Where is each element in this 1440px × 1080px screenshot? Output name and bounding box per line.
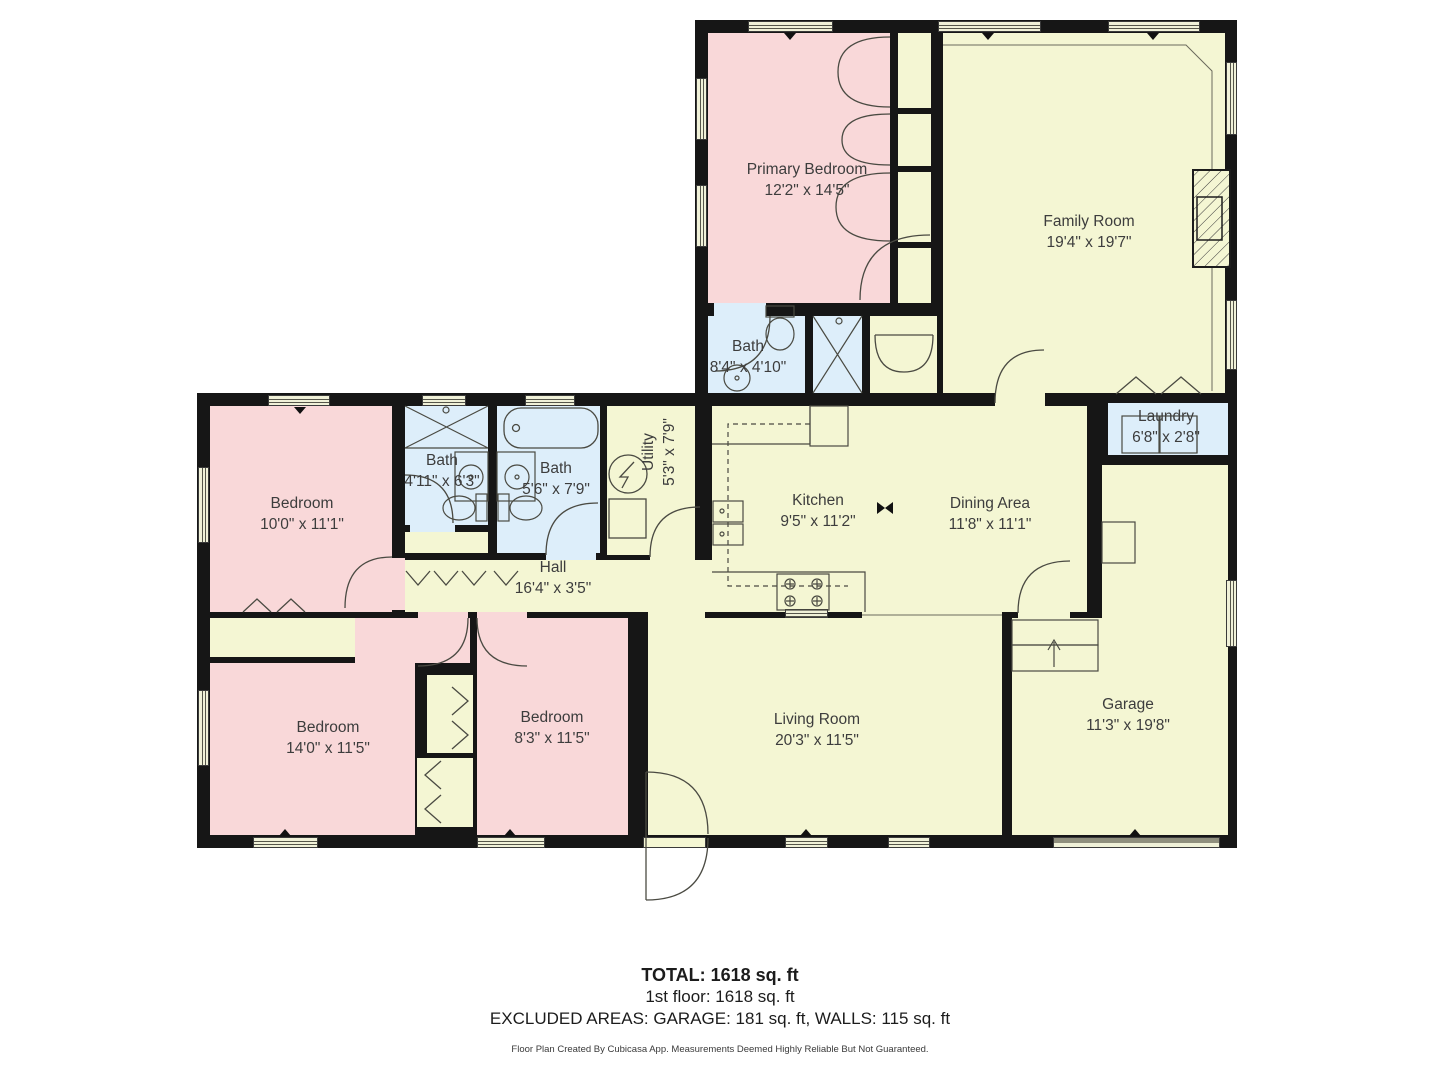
room-name: Garage bbox=[1086, 694, 1170, 715]
window bbox=[422, 395, 466, 406]
window bbox=[748, 21, 833, 32]
room-dims: 10'0" x 11'1" bbox=[260, 514, 344, 535]
doorway bbox=[410, 525, 455, 532]
bedroom-sw-entry bbox=[355, 618, 470, 663]
room-name: Hall bbox=[515, 557, 591, 578]
label-living-room: Living Room 20'3" x 11'5" bbox=[774, 709, 860, 751]
floor-plan-canvas: Primary Bedroom 12'2" x 14'5" Family Roo… bbox=[0, 0, 1440, 1080]
floor-plan: Primary Bedroom 12'2" x 14'5" Family Roo… bbox=[0, 0, 1440, 1080]
doorway bbox=[714, 303, 766, 316]
window bbox=[1108, 21, 1200, 32]
room-dims: 20'3" x 11'5" bbox=[774, 730, 860, 751]
garage-door bbox=[1053, 837, 1220, 848]
label-bedroom-nw: Bedroom 10'0" x 11'1" bbox=[260, 493, 344, 535]
window bbox=[253, 837, 318, 848]
doorway bbox=[392, 558, 405, 610]
room-name: Bath bbox=[522, 458, 590, 479]
window bbox=[525, 395, 575, 406]
open-boundary bbox=[862, 612, 1002, 618]
window bbox=[198, 690, 209, 766]
column-closet-top bbox=[427, 675, 473, 753]
room-name: Bedroom bbox=[514, 707, 589, 728]
closet-divider bbox=[898, 242, 931, 248]
suite-vestibule bbox=[870, 316, 937, 393]
room-dims: 19'4" x 19'7" bbox=[1043, 232, 1134, 253]
closet-divider bbox=[898, 166, 931, 172]
room-name: Bath bbox=[710, 336, 786, 357]
column-closet-bottom bbox=[417, 758, 473, 827]
room-dims: 5'3" x 7'9" bbox=[659, 418, 680, 486]
room-name: Dining Area bbox=[949, 493, 1032, 514]
room-dims: 9'5" x 11'2" bbox=[780, 511, 855, 532]
window bbox=[1226, 580, 1237, 647]
doorway bbox=[1018, 612, 1070, 618]
doorway bbox=[477, 612, 527, 618]
plan-summary: TOTAL: 1618 sq. ft 1st floor: 1618 sq. f… bbox=[0, 964, 1440, 1055]
label-bedroom-s: Bedroom 8'3" x 11'5" bbox=[514, 707, 589, 749]
total-area-text: TOTAL: 1618 sq. ft bbox=[0, 964, 1440, 986]
label-bath-hall: Bath 4'11" x 6'3" bbox=[404, 450, 479, 492]
room-dims: 12'2" x 14'5" bbox=[747, 180, 868, 201]
room-dims: 16'4" x 3'5" bbox=[515, 578, 591, 599]
window bbox=[198, 467, 209, 543]
label-bath-primary: Bath 8'4" x 4'10" bbox=[710, 336, 786, 378]
first-floor-area-text: 1st floor: 1618 sq. ft bbox=[0, 986, 1440, 1008]
room-dims: 11'8" x 11'1" bbox=[949, 514, 1032, 535]
label-dining-area: Dining Area 11'8" x 11'1" bbox=[949, 493, 1032, 535]
label-utility: Utility 5'3" x 7'9" bbox=[638, 418, 680, 486]
label-family-room: Family Room 19'4" x 19'7" bbox=[1043, 211, 1134, 253]
bedroom-sw-closet bbox=[210, 618, 355, 657]
room-name: Primary Bedroom bbox=[747, 159, 868, 180]
doorway bbox=[648, 612, 705, 618]
window bbox=[888, 837, 930, 848]
room-name: Bedroom bbox=[260, 493, 344, 514]
window bbox=[696, 185, 707, 247]
room-dims: 8'4" x 4'10" bbox=[710, 357, 786, 378]
room-dims: 4'11" x 6'3" bbox=[404, 471, 479, 492]
window bbox=[938, 21, 1041, 32]
label-laundry: Laundry 6'8" x 2'8" bbox=[1132, 406, 1200, 448]
room-name: Kitchen bbox=[780, 490, 855, 511]
closet-divider bbox=[898, 108, 931, 114]
window bbox=[477, 837, 545, 848]
room-dims: 5'6" x 7'9" bbox=[522, 479, 590, 500]
window bbox=[785, 837, 828, 848]
room-name: Utility bbox=[638, 418, 659, 486]
room-name: Laundry bbox=[1132, 406, 1200, 427]
room-dims: 11'3" x 19'8" bbox=[1086, 715, 1170, 736]
room-name: Living Room bbox=[774, 709, 860, 730]
excluded-areas-text: EXCLUDED AREAS: GARAGE: 181 sq. ft, WALL… bbox=[0, 1008, 1440, 1030]
label-hall: Hall 16'4" x 3'5" bbox=[515, 557, 591, 599]
window bbox=[268, 395, 330, 406]
room-name: Bedroom bbox=[286, 717, 370, 738]
room-dims: 8'3" x 11'5" bbox=[514, 728, 589, 749]
room-dims: 6'8" x 2'8" bbox=[1132, 427, 1200, 448]
window bbox=[1226, 300, 1237, 370]
doorway bbox=[995, 393, 1045, 406]
room-name: Bath bbox=[404, 450, 479, 471]
front-door-threshold bbox=[643, 837, 706, 848]
room-name: Family Room bbox=[1043, 211, 1134, 232]
label-kitchen: Kitchen 9'5" x 11'2" bbox=[780, 490, 855, 532]
interior-window bbox=[785, 609, 828, 618]
doorway bbox=[650, 555, 695, 560]
window bbox=[696, 78, 707, 140]
doorway bbox=[418, 612, 468, 618]
label-garage: Garage 11'3" x 19'8" bbox=[1086, 694, 1170, 736]
label-primary-bedroom: Primary Bedroom 12'2" x 14'5" bbox=[747, 159, 868, 201]
room-dims: 14'0" x 11'5" bbox=[286, 738, 370, 759]
label-bedroom-sw: Bedroom 14'0" x 11'5" bbox=[286, 717, 370, 759]
primary-shower bbox=[813, 316, 862, 393]
room-garage bbox=[1102, 465, 1228, 835]
hall-linen-closet bbox=[405, 532, 488, 553]
disclaimer-text: Floor Plan Created By Cubicasa App. Meas… bbox=[0, 1044, 1440, 1055]
window bbox=[1226, 62, 1237, 135]
label-bath-main: Bath 5'6" x 7'9" bbox=[522, 458, 590, 500]
